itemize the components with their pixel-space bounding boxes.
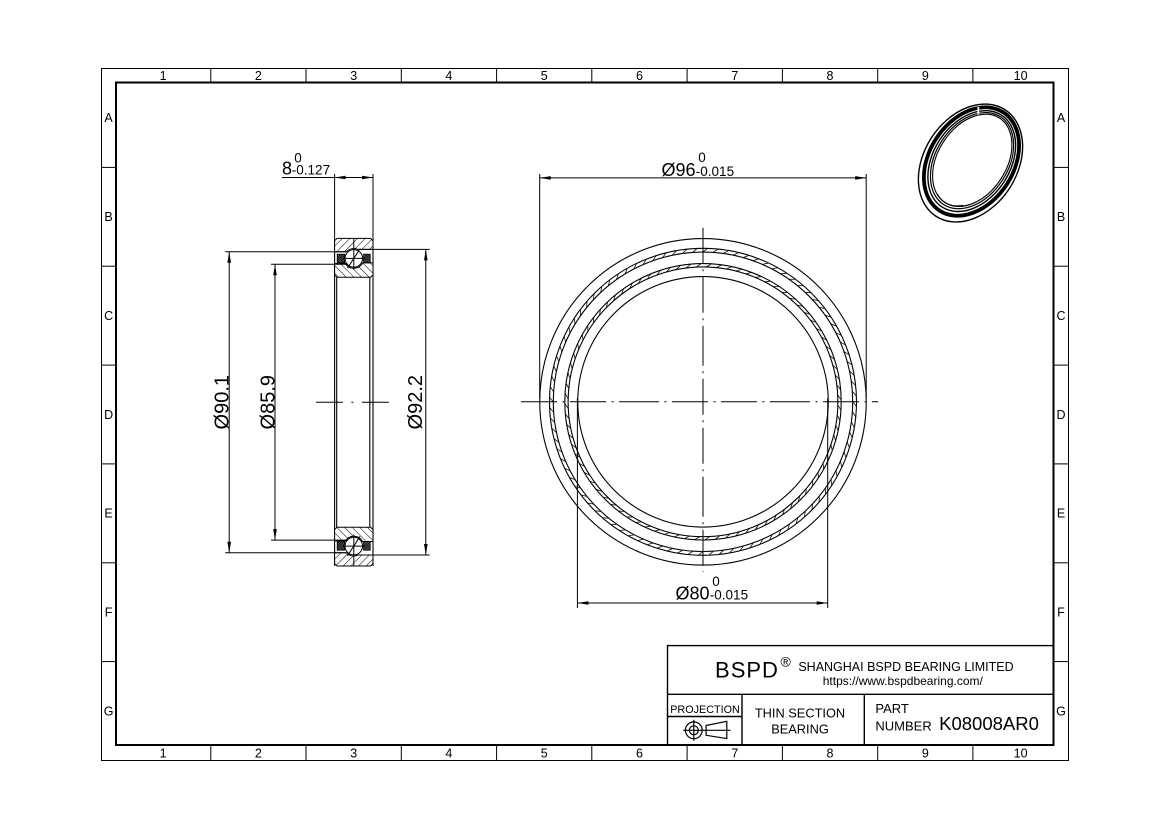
svg-text:3: 3 bbox=[350, 69, 357, 83]
svg-text:C: C bbox=[1056, 309, 1065, 323]
svg-text:1: 1 bbox=[160, 69, 167, 83]
svg-text:BSPD: BSPD bbox=[715, 658, 779, 683]
svg-text:PART: PART bbox=[875, 701, 909, 716]
svg-text:-0.015: -0.015 bbox=[696, 164, 734, 179]
svg-text:Ø80: Ø80 bbox=[676, 584, 710, 604]
svg-text:7: 7 bbox=[731, 746, 738, 760]
svg-text:6: 6 bbox=[636, 69, 643, 83]
svg-text:E: E bbox=[1057, 507, 1065, 521]
svg-text:Ø96: Ø96 bbox=[662, 160, 696, 180]
svg-text:THIN SECTION: THIN SECTION bbox=[755, 705, 845, 720]
svg-text:4: 4 bbox=[445, 69, 452, 83]
svg-text:8: 8 bbox=[827, 746, 834, 760]
svg-text:A: A bbox=[1057, 111, 1066, 125]
svg-text:10: 10 bbox=[1014, 69, 1028, 83]
svg-text:8: 8 bbox=[282, 159, 292, 179]
svg-text:0: 0 bbox=[698, 150, 706, 165]
svg-text:1: 1 bbox=[160, 746, 167, 760]
svg-text:10: 10 bbox=[1014, 746, 1028, 760]
svg-text:A: A bbox=[104, 111, 113, 125]
svg-text:G: G bbox=[1056, 704, 1066, 718]
svg-text:0: 0 bbox=[294, 150, 302, 165]
svg-text:Ø92.2: Ø92.2 bbox=[405, 375, 427, 429]
svg-text:B: B bbox=[104, 210, 112, 224]
svg-text:2: 2 bbox=[255, 69, 262, 83]
svg-text:2: 2 bbox=[255, 746, 262, 760]
svg-text:F: F bbox=[105, 606, 113, 620]
svg-text:D: D bbox=[1056, 408, 1065, 422]
svg-text:SHANGHAI BSPD BEARING LIMITED: SHANGHAI BSPD BEARING LIMITED bbox=[798, 660, 1013, 674]
svg-text:Ø90.1: Ø90.1 bbox=[211, 375, 233, 429]
svg-text:PROJECTION: PROJECTION bbox=[670, 704, 740, 716]
svg-text:9: 9 bbox=[922, 69, 929, 83]
svg-text:B: B bbox=[1057, 210, 1065, 224]
svg-text:K08008AR0: K08008AR0 bbox=[939, 713, 1039, 734]
svg-text:9: 9 bbox=[922, 746, 929, 760]
svg-text:BEARING: BEARING bbox=[771, 722, 829, 737]
svg-text:F: F bbox=[1057, 606, 1065, 620]
svg-text:0: 0 bbox=[712, 574, 720, 589]
svg-text:https://www.bspdbearing.com/: https://www.bspdbearing.com/ bbox=[823, 674, 984, 688]
svg-text:C: C bbox=[104, 309, 113, 323]
svg-text:®: ® bbox=[781, 654, 792, 670]
svg-text:5: 5 bbox=[541, 69, 548, 83]
svg-text:7: 7 bbox=[731, 69, 738, 83]
svg-text:E: E bbox=[104, 507, 112, 521]
svg-text:8: 8 bbox=[827, 69, 834, 83]
svg-text:G: G bbox=[104, 704, 114, 718]
svg-text:D: D bbox=[104, 408, 113, 422]
svg-text:3: 3 bbox=[350, 746, 357, 760]
svg-text:NUMBER: NUMBER bbox=[875, 718, 931, 733]
svg-text:6: 6 bbox=[636, 746, 643, 760]
svg-text:4: 4 bbox=[445, 746, 452, 760]
svg-text:5: 5 bbox=[541, 746, 548, 760]
svg-text:Ø85.9: Ø85.9 bbox=[257, 375, 279, 429]
svg-text:-0.015: -0.015 bbox=[710, 588, 748, 603]
